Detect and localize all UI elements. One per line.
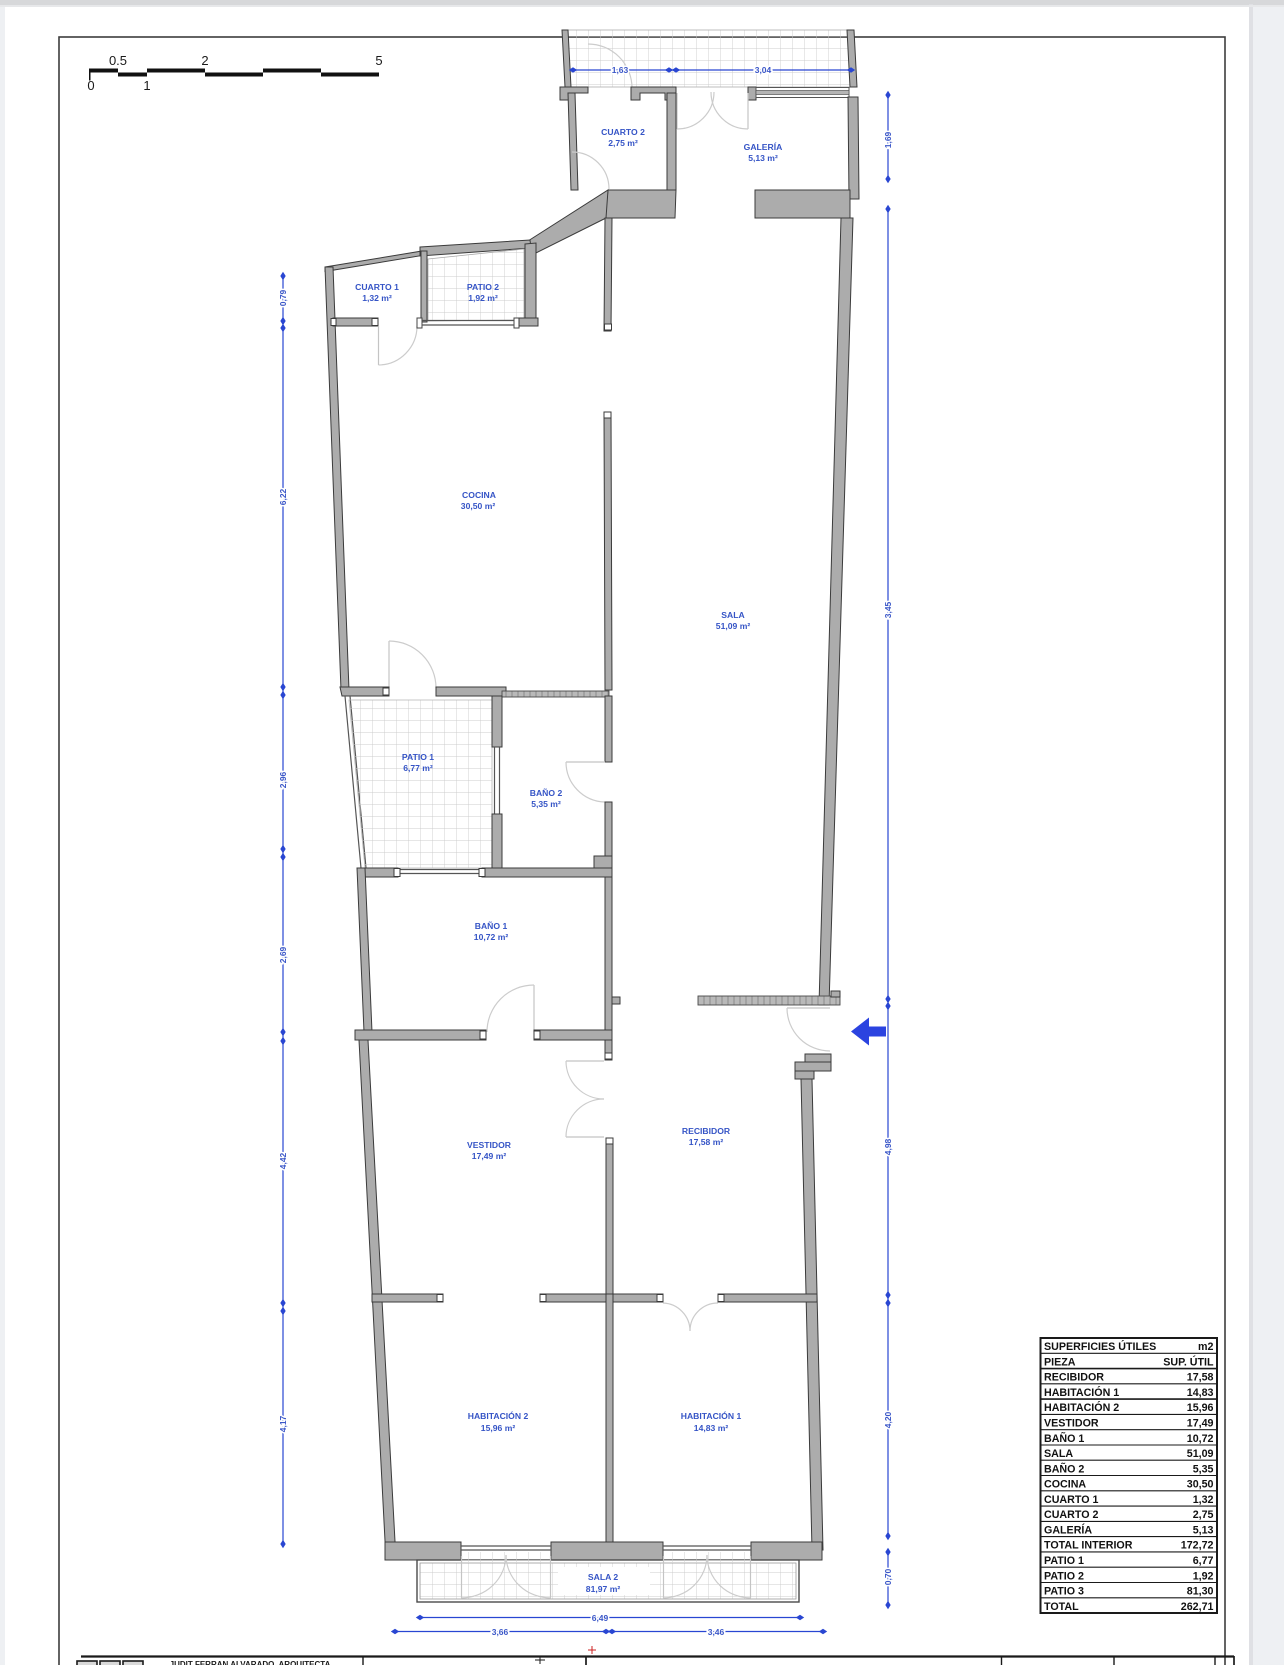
svg-text:GALERÍA: GALERÍA — [1044, 1524, 1092, 1537]
svg-text:0.5: 0.5 — [109, 53, 127, 68]
svg-text:3,04: 3,04 — [755, 65, 772, 75]
svg-text:VESTIDOR: VESTIDOR — [467, 1140, 512, 1150]
svg-text:CUARTO 2: CUARTO 2 — [1044, 1509, 1098, 1521]
svg-text:SUPERFICIES ÚTILES: SUPERFICIES ÚTILES — [1044, 1340, 1156, 1353]
svg-text:6,77: 6,77 — [1193, 1555, 1214, 1567]
svg-text:HABITACIÓN 1: HABITACIÓN 1 — [1044, 1386, 1119, 1399]
svg-text:5: 5 — [375, 53, 382, 68]
svg-text:262,71: 262,71 — [1181, 1601, 1214, 1613]
svg-text:1: 1 — [143, 78, 150, 93]
svg-text:4,42: 4,42 — [278, 1152, 288, 1169]
svg-text:CUARTO 1: CUARTO 1 — [1044, 1494, 1098, 1506]
svg-text:81,30: 81,30 — [1187, 1586, 1214, 1598]
svg-text:1,92 m²: 1,92 m² — [468, 293, 498, 303]
svg-text:0,70: 0,70 — [883, 1568, 893, 1585]
svg-text:PATIO 2: PATIO 2 — [1044, 1570, 1084, 1582]
svg-text:17,58: 17,58 — [1187, 1372, 1214, 1384]
svg-text:3,66: 3,66 — [492, 1627, 509, 1637]
svg-text:5,13: 5,13 — [1193, 1525, 1214, 1537]
svg-text:5,13 m²: 5,13 m² — [748, 153, 778, 163]
svg-text:BAÑO 1: BAÑO 1 — [1044, 1432, 1084, 1445]
svg-text:51,09: 51,09 — [1187, 1448, 1214, 1460]
svg-text:2,75: 2,75 — [1193, 1509, 1214, 1521]
svg-text:172,72: 172,72 — [1181, 1540, 1214, 1552]
svg-text:JUDIT FERRAN ALVARADO, ARQUITE: JUDIT FERRAN ALVARADO, ARQUITECTA — [170, 1660, 331, 1665]
svg-text:30,50: 30,50 — [1187, 1479, 1214, 1491]
svg-text:HABITACIÓN 1: HABITACIÓN 1 — [681, 1410, 742, 1421]
svg-text:VESTIDOR: VESTIDOR — [1044, 1418, 1099, 1430]
svg-text:SALA 2: SALA 2 — [588, 1572, 618, 1582]
svg-text:m2: m2 — [1198, 1341, 1214, 1353]
svg-text:BAÑO 2: BAÑO 2 — [530, 788, 563, 798]
svg-text:HABITACIÓN 2: HABITACIÓN 2 — [1044, 1401, 1119, 1414]
svg-text:0,79: 0,79 — [278, 289, 288, 306]
svg-text:0: 0 — [87, 78, 94, 93]
svg-text:BAÑO 1: BAÑO 1 — [475, 921, 508, 931]
svg-text:10,72: 10,72 — [1187, 1433, 1214, 1445]
svg-text:5,35 m²: 5,35 m² — [531, 799, 561, 809]
svg-text:15,96 m²: 15,96 m² — [481, 1423, 516, 1433]
svg-text:14,83: 14,83 — [1187, 1387, 1214, 1399]
svg-text:1,63: 1,63 — [612, 65, 629, 75]
svg-text:1,92: 1,92 — [1193, 1570, 1214, 1582]
svg-text:COCINA: COCINA — [462, 490, 496, 500]
svg-text:PATIO 1: PATIO 1 — [1044, 1555, 1084, 1567]
svg-text:CUARTO 2: CUARTO 2 — [601, 127, 645, 137]
svg-text:CUARTO 1: CUARTO 1 — [355, 282, 399, 292]
svg-text:HABITACIÓN 2: HABITACIÓN 2 — [468, 1410, 529, 1421]
svg-text:TOTAL INTERIOR: TOTAL INTERIOR — [1044, 1540, 1133, 1552]
svg-text:SALA: SALA — [1044, 1448, 1073, 1460]
svg-text:4,98: 4,98 — [883, 1138, 893, 1155]
svg-text:14,83 m²: 14,83 m² — [694, 1423, 729, 1433]
svg-text:5,35: 5,35 — [1193, 1463, 1214, 1475]
svg-text:17,49 m²: 17,49 m² — [472, 1151, 507, 1161]
svg-text:2: 2 — [201, 53, 208, 68]
svg-text:PIEZA: PIEZA — [1044, 1356, 1076, 1368]
svg-text:PATIO 1: PATIO 1 — [402, 752, 434, 762]
svg-text:30,50 m²: 30,50 m² — [461, 501, 496, 511]
svg-text:1,32: 1,32 — [1193, 1494, 1214, 1506]
svg-text:17,49: 17,49 — [1187, 1418, 1214, 1430]
svg-text:4,20: 4,20 — [883, 1411, 893, 1428]
svg-text:2,96: 2,96 — [278, 771, 288, 788]
svg-text:1,32 m²: 1,32 m² — [362, 293, 392, 303]
svg-text:COCINA: COCINA — [1044, 1479, 1086, 1491]
svg-text:81,97 m²: 81,97 m² — [586, 1584, 621, 1594]
svg-text:PATIO 3: PATIO 3 — [1044, 1586, 1084, 1598]
svg-text:3,45: 3,45 — [883, 601, 893, 618]
svg-text:GALERÍA: GALERÍA — [744, 142, 783, 152]
svg-text:1,69: 1,69 — [883, 131, 893, 148]
svg-text:2,75 m²: 2,75 m² — [608, 138, 638, 148]
svg-text:3,46: 3,46 — [708, 1627, 725, 1637]
svg-text:15,96: 15,96 — [1187, 1402, 1214, 1414]
svg-text:6,77 m²: 6,77 m² — [403, 763, 433, 773]
svg-text:2,69: 2,69 — [278, 946, 288, 963]
svg-text:10,72 m²: 10,72 m² — [474, 932, 509, 942]
svg-text:6,49: 6,49 — [592, 1613, 609, 1623]
svg-text:RECIBIDOR: RECIBIDOR — [682, 1126, 731, 1136]
svg-text:PATIO 2: PATIO 2 — [467, 282, 499, 292]
svg-text:TOTAL: TOTAL — [1044, 1601, 1079, 1613]
svg-text:51,09 m²: 51,09 m² — [716, 621, 751, 631]
svg-text:SALA: SALA — [721, 610, 744, 620]
svg-text:6,22: 6,22 — [278, 488, 288, 505]
svg-text:17,58 m²: 17,58 m² — [689, 1137, 724, 1147]
svg-text:4,17: 4,17 — [278, 1415, 288, 1432]
svg-text:SUP. ÚTIL: SUP. ÚTIL — [1163, 1355, 1214, 1368]
svg-text:BAÑO 2: BAÑO 2 — [1044, 1462, 1084, 1475]
svg-text:RECIBIDOR: RECIBIDOR — [1044, 1372, 1104, 1384]
